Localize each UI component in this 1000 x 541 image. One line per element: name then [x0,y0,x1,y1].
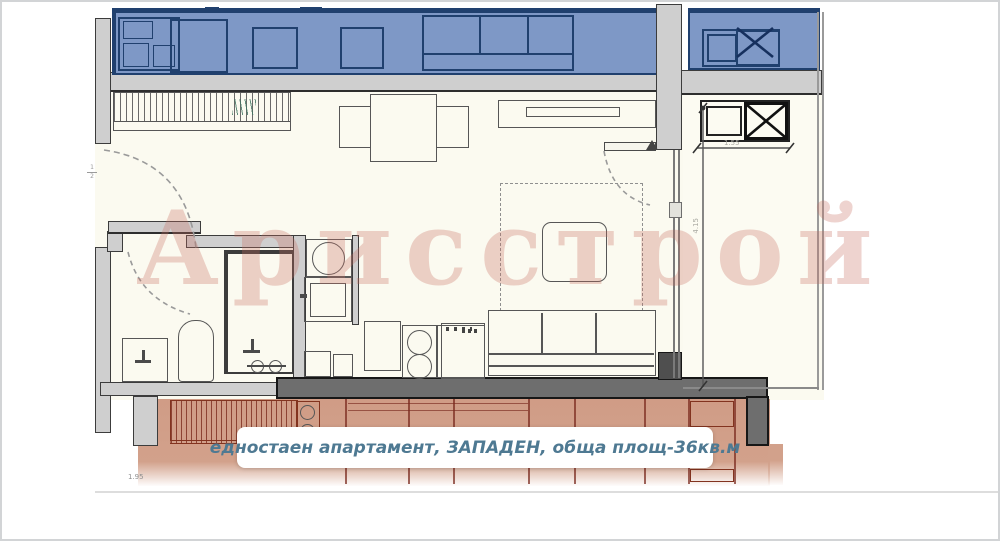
caption-text: едностаен апартамент, ЗАПАДЕН, обща площ… [210,438,741,458]
entry-door-mark-bottom: 2 [86,174,98,180]
entry-door-mark: 1 2 [86,165,98,180]
ac-terrace-x-icon [747,105,785,137]
dimension-label-bottom-left: 1.95 [128,473,144,481]
floor-plan-canvas: 1.55 4.15 1.95 1 2 Арисстрой едностаен а… [0,0,1000,541]
caption-label: едностаен апартамент, ЗАПАДЕН, обща площ… [237,427,713,468]
dimension-label-terrace-width: 1.55 [724,139,740,147]
dimension-origin-dot [701,106,706,111]
watermark-text: Арисстрой [136,198,885,300]
entry-door-mark-top: 1 [86,165,98,171]
door-frame-mark [646,140,658,150]
ac-blue-x-icon [737,28,773,57]
